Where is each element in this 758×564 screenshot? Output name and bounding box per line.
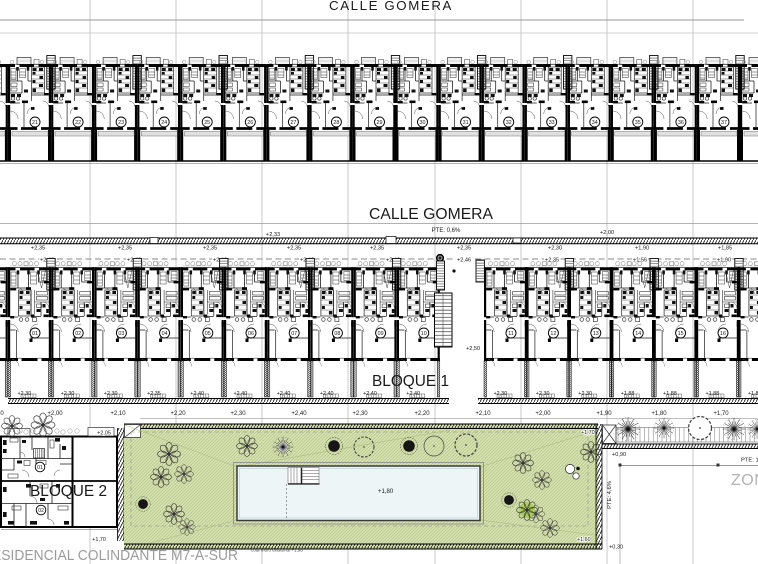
svg-text:+1,56: +1,56 xyxy=(633,258,647,264)
svg-text:+2,30: +2,30 xyxy=(548,246,562,252)
svg-text:+2,10: +2,10 xyxy=(475,411,491,417)
svg-text:28: 28 xyxy=(333,120,339,126)
svg-text:+2,30: +2,30 xyxy=(578,391,592,397)
svg-text:+2,30: +2,30 xyxy=(494,391,508,397)
svg-text:24: 24 xyxy=(161,120,167,126)
svg-text:01: 01 xyxy=(32,331,38,337)
svg-text:BLOQUE 1: BLOQUE 1 xyxy=(372,373,449,390)
svg-text:05: 05 xyxy=(205,331,211,337)
svg-text:+2,20: +2,20 xyxy=(414,411,430,417)
svg-text:+1,70: +1,70 xyxy=(581,430,595,436)
svg-text:+2,30: +2,30 xyxy=(18,391,32,397)
svg-text:+2,30: +2,30 xyxy=(352,411,368,417)
svg-text:+2,40: +2,40 xyxy=(291,411,307,417)
svg-text:14: 14 xyxy=(635,331,641,337)
svg-text:26: 26 xyxy=(247,120,253,126)
svg-text:+1,80: +1,80 xyxy=(378,489,394,495)
svg-text:11: 11 xyxy=(508,331,514,337)
svg-text:06: 06 xyxy=(248,331,254,337)
svg-text:PTE: 1,2: PTE: 1,2 xyxy=(741,458,758,464)
svg-text:10: 10 xyxy=(421,331,427,337)
svg-text:21: 21 xyxy=(32,120,38,126)
svg-text:+2,40: +2,40 xyxy=(406,391,420,397)
svg-text:+2,35: +2,35 xyxy=(457,246,471,252)
svg-text:+2,35: +2,35 xyxy=(287,246,301,252)
svg-text:04: 04 xyxy=(162,331,168,337)
svg-text:03: 03 xyxy=(118,331,124,337)
svg-text:02: 02 xyxy=(38,508,44,514)
svg-text:27: 27 xyxy=(290,120,296,126)
svg-text:+2,30: +2,30 xyxy=(536,391,550,397)
svg-text:+2,00: +2,00 xyxy=(600,230,614,236)
svg-text:+2,30: +2,30 xyxy=(230,411,246,417)
svg-text:+1,80: +1,80 xyxy=(651,411,667,417)
svg-text:33: 33 xyxy=(549,120,555,126)
svg-text:+1,90: +1,90 xyxy=(596,411,612,417)
svg-text:ZONA: ZONA xyxy=(731,472,758,489)
svg-text:29: 29 xyxy=(377,120,383,126)
svg-text:+2,40: +2,40 xyxy=(320,391,334,397)
svg-text:07: 07 xyxy=(291,331,297,337)
svg-text:+1,88: +1,88 xyxy=(663,391,677,397)
svg-text:+2,35: +2,35 xyxy=(147,391,161,397)
svg-text:+2,35: +2,35 xyxy=(203,246,217,252)
svg-text:+2,35: +2,35 xyxy=(370,246,384,252)
svg-text:+0,30: +0,30 xyxy=(609,545,623,551)
svg-text:32: 32 xyxy=(506,120,512,126)
svg-text:+2,00: +2,00 xyxy=(535,411,551,417)
svg-text:08: 08 xyxy=(334,331,340,337)
svg-text:+1,70: +1,70 xyxy=(92,537,106,543)
svg-text:+1,88: +1,88 xyxy=(621,391,635,397)
svg-text:+2,50: +2,50 xyxy=(466,346,480,352)
svg-text:22: 22 xyxy=(75,120,81,126)
svg-text:30: 30 xyxy=(420,120,426,126)
svg-text:31: 31 xyxy=(463,120,469,126)
svg-text:+2,30: +2,30 xyxy=(104,391,118,397)
svg-text:CALLE GOMERA: CALLE GOMERA xyxy=(329,0,453,13)
svg-text:+2,46: +2,46 xyxy=(457,258,471,264)
svg-text:PTE: 4,6%: PTE: 4,6% xyxy=(607,481,613,509)
svg-text:+1,90: +1,90 xyxy=(635,246,649,252)
svg-text:+1,85: +1,85 xyxy=(718,246,732,252)
svg-text:25: 25 xyxy=(204,120,210,126)
svg-text:+0,90: +0,90 xyxy=(612,452,626,458)
svg-text:34: 34 xyxy=(592,120,598,126)
svg-text:13: 13 xyxy=(593,331,599,337)
svg-text:+2,40: +2,40 xyxy=(190,391,204,397)
svg-text:ESIDENCIAL COLINDANTE M7-A-SUR: ESIDENCIAL COLINDANTE M7-A-SUR xyxy=(0,547,238,564)
svg-text:+2,05: +2,05 xyxy=(97,431,111,437)
svg-text:+1,88: +1,88 xyxy=(706,391,720,397)
svg-text:+2,40: +2,40 xyxy=(277,391,291,397)
svg-text:35: 35 xyxy=(635,120,641,126)
svg-text:23: 23 xyxy=(118,120,124,126)
svg-text:+2,20: +2,20 xyxy=(170,411,186,417)
svg-text:+1,8: +1,8 xyxy=(748,391,758,397)
svg-text:PTE: 0,6%: PTE: 0,6% xyxy=(432,228,461,234)
svg-text:+2,40: +2,40 xyxy=(234,391,248,397)
svg-text:16: 16 xyxy=(720,331,726,337)
svg-text:+2,35: +2,35 xyxy=(118,246,132,252)
svg-text:15: 15 xyxy=(678,331,684,337)
svg-text:12: 12 xyxy=(550,331,556,337)
svg-text:BLOQUE 2: BLOQUE 2 xyxy=(30,483,107,500)
svg-text:09: 09 xyxy=(378,331,384,337)
svg-text:02: 02 xyxy=(75,331,81,337)
svg-text:+2,40: +2,40 xyxy=(363,391,377,397)
svg-text:+2,33: +2,33 xyxy=(266,232,280,238)
svg-text:CALLE GOMERA: CALLE GOMERA xyxy=(369,206,494,223)
svg-text:37: 37 xyxy=(721,120,727,126)
svg-text:+1,60: +1,60 xyxy=(577,537,591,543)
svg-text:cota muro existente +1,90: cota muro existente +1,90 xyxy=(251,548,303,553)
svg-text:+2,10: +2,10 xyxy=(110,411,126,417)
svg-text:+1,90: +1,90 xyxy=(717,258,731,264)
svg-text:+2,35: +2,35 xyxy=(31,246,45,252)
svg-text:+1,70: +1,70 xyxy=(713,411,729,417)
svg-text:36: 36 xyxy=(678,120,684,126)
svg-text:01: 01 xyxy=(37,465,43,471)
svg-text:+2,30: +2,30 xyxy=(61,391,75,397)
